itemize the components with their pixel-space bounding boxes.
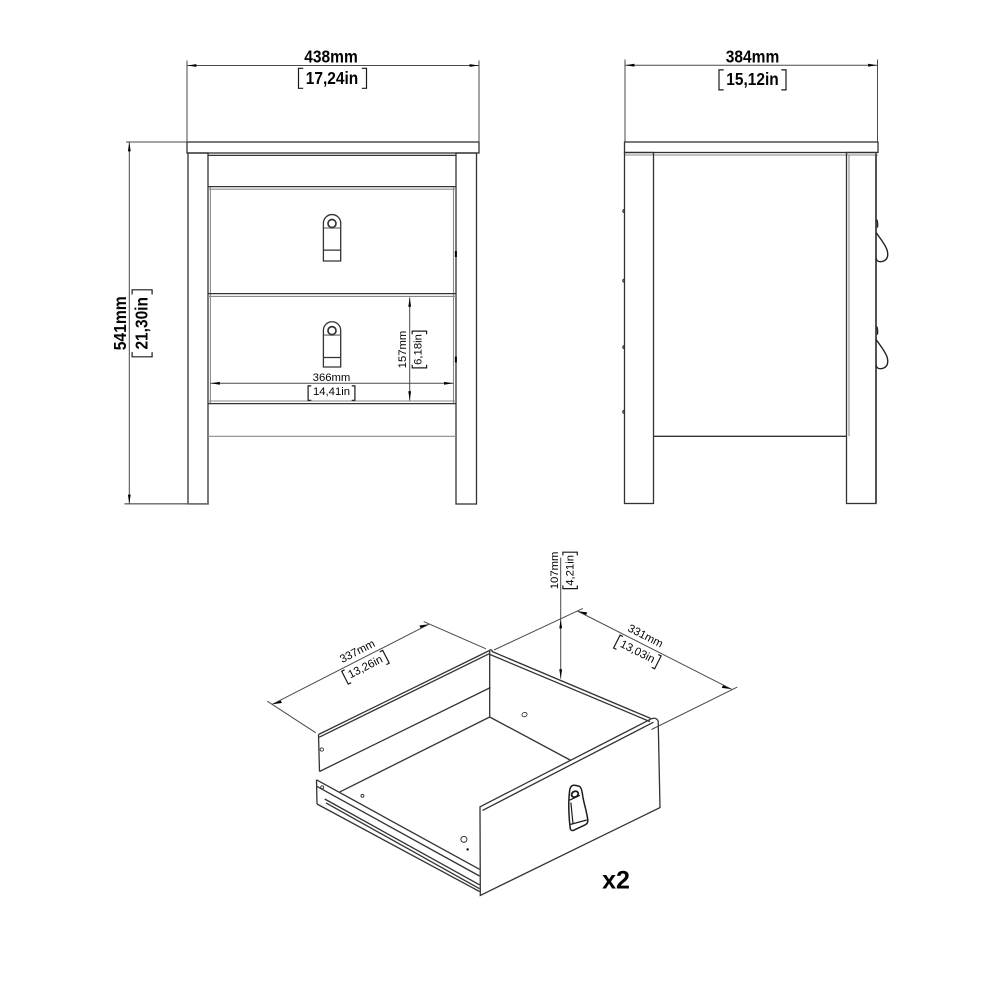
svg-text:107mm: 107mm: [549, 552, 561, 590]
svg-text:384mm: 384mm: [726, 47, 780, 67]
svg-text:541mm: 541mm: [110, 296, 130, 350]
svg-text:15,12in: 15,12in: [726, 69, 779, 89]
svg-text:x2: x2: [602, 867, 630, 895]
svg-text:17,24in: 17,24in: [306, 68, 359, 88]
svg-text:438mm: 438mm: [304, 47, 358, 67]
svg-text:366mm: 366mm: [313, 372, 351, 384]
svg-text:4,21in: 4,21in: [564, 555, 576, 586]
svg-text:6,18in: 6,18in: [413, 334, 425, 365]
svg-text:157mm: 157mm: [397, 331, 409, 369]
svg-text:14,41in: 14,41in: [313, 386, 350, 398]
svg-text:21,30in: 21,30in: [131, 297, 151, 350]
